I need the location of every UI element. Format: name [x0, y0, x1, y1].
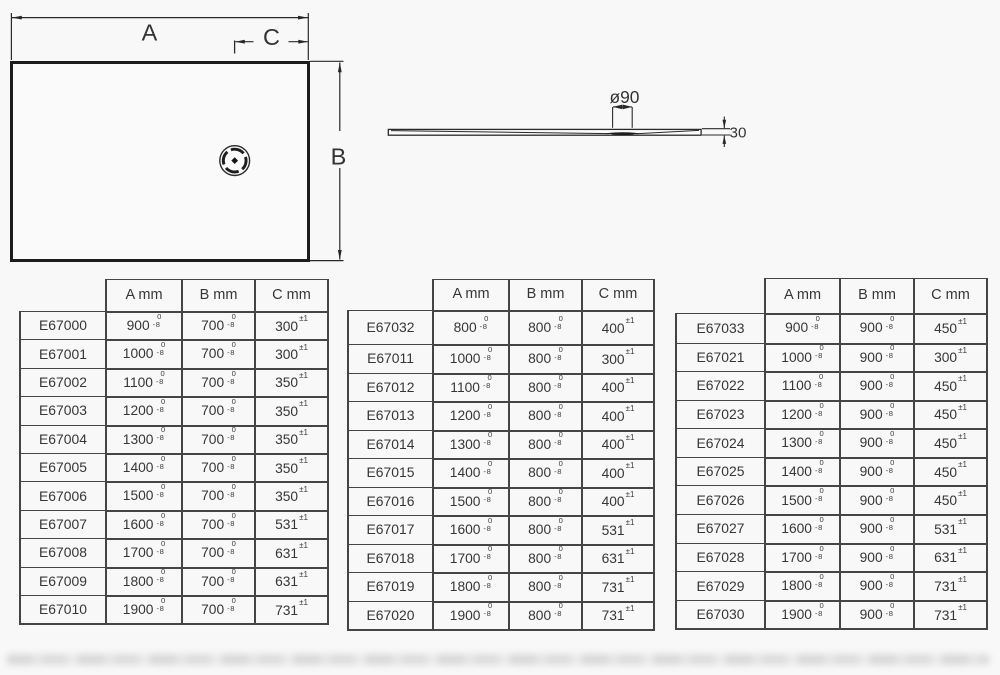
svg-text:A: A	[142, 20, 158, 46]
svg-text:30: 30	[730, 125, 747, 142]
svg-text:B: B	[331, 144, 347, 170]
svg-text:C: C	[263, 24, 280, 50]
svg-text:ø90: ø90	[610, 87, 640, 107]
